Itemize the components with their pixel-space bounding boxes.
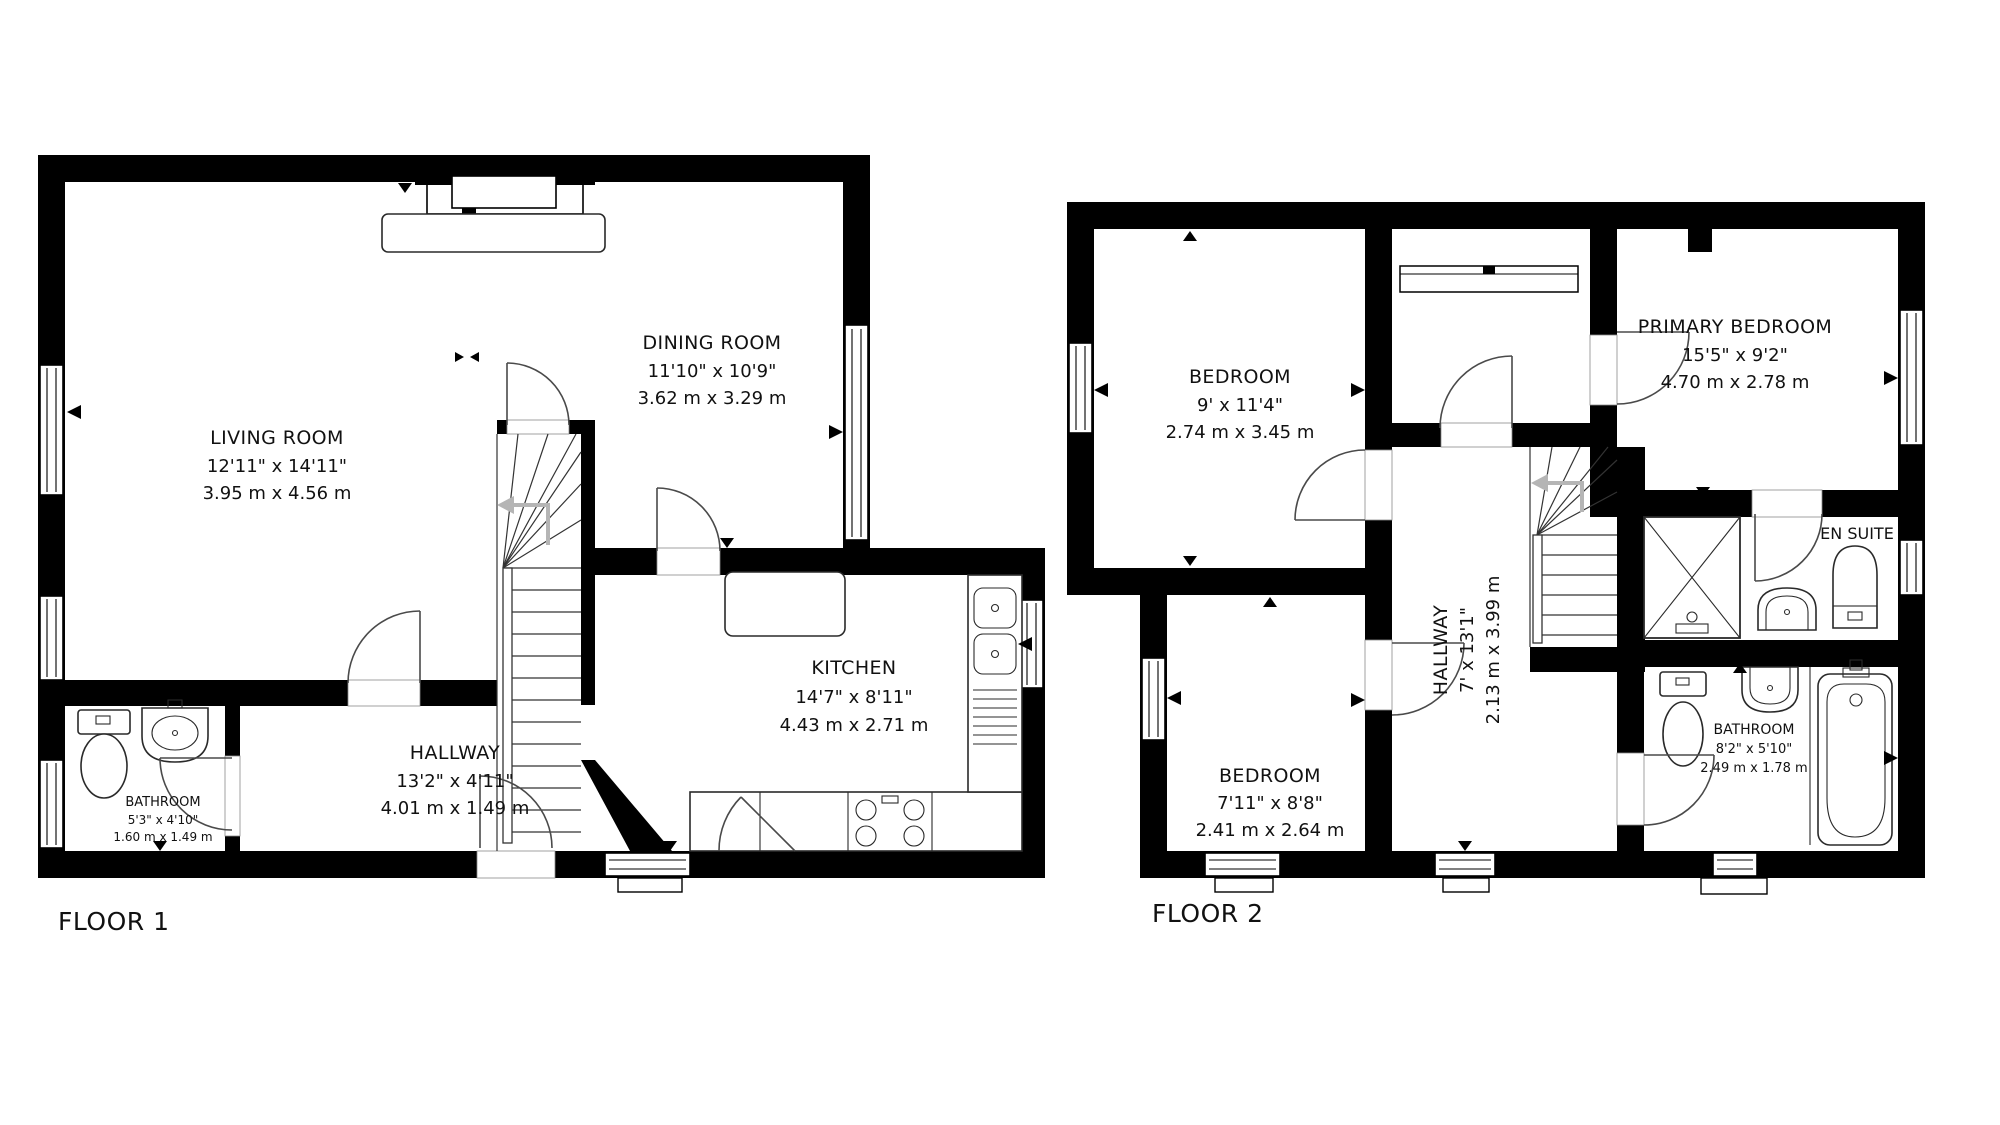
floorplan-svg: LIVING ROOM 12'11" x 14'11" 3.95 m x 4.5… [0, 0, 2000, 1125]
bedroom-top-imperial: 9' x 11'4" [1197, 395, 1283, 416]
kitchen-counter [725, 572, 845, 636]
hallway1-metric: 4.01 m x 1.49 m [381, 798, 530, 819]
bathtub-icon [1818, 660, 1892, 845]
window [1205, 853, 1280, 876]
hallway1-label: HALLWAY [410, 742, 500, 764]
door [1440, 356, 1512, 428]
living-room-label: LIVING ROOM [210, 427, 344, 449]
window [605, 853, 690, 876]
bathroom1-label: BATHROOM [125, 795, 200, 810]
kitchen-label: KITCHEN [811, 657, 896, 679]
toilet-icon [1660, 672, 1706, 766]
sink-icon [1758, 588, 1816, 630]
window [1713, 853, 1757, 876]
bathroom1-metric: 1.60 m x 1.49 m [113, 830, 212, 844]
window [1142, 658, 1165, 740]
floor2-plan: BEDROOM 9' x 11'4" 2.74 m x 3.45 m BEDRO… [1067, 202, 1925, 928]
floor1-title: FLOOR 1 [58, 907, 170, 936]
stairs-up-arrow-icon [497, 496, 548, 545]
toilet-icon [78, 710, 130, 798]
bathroom2-label: BATHROOM [1713, 722, 1794, 738]
floor1-walls [38, 155, 1045, 878]
kitchen-sink-icon [968, 575, 1022, 792]
door [1392, 643, 1464, 715]
window [1900, 310, 1923, 445]
kitchen-imperial: 14'7" x 8'11" [795, 687, 912, 708]
primary-bedroom-label: PRIMARY BEDROOM [1638, 316, 1832, 338]
window [1069, 343, 1092, 433]
step [1215, 878, 1273, 892]
bathroom2-metric: 2.49 m x 1.78 m [1700, 761, 1807, 776]
door [348, 611, 420, 683]
door [1755, 514, 1822, 581]
bedroom-bottom-label: BEDROOM [1219, 765, 1321, 787]
bedroom-bottom-imperial: 7'11" x 8'8" [1217, 793, 1323, 814]
door [1295, 450, 1365, 520]
step [1443, 878, 1489, 892]
window [40, 365, 63, 495]
dining-room-label: DINING ROOM [643, 332, 782, 354]
floorplan-canvas: LIVING ROOM 12'11" x 14'11" 3.95 m x 4.5… [0, 0, 2000, 1125]
hallway1-imperial: 13'2" x 4'11" [396, 771, 513, 792]
window [40, 760, 63, 848]
bathroom1-imperial: 5'3" x 4'10" [128, 813, 199, 827]
floor2-walls [1067, 202, 1925, 878]
kitchen-base-units [690, 792, 1022, 851]
floor2-title: FLOOR 2 [1152, 899, 1264, 928]
sink-icon [142, 700, 208, 762]
ensuite-label: EN SUITE [1820, 524, 1894, 543]
stairs-up-arrow-icon [1531, 474, 1582, 512]
window [40, 596, 63, 680]
kitchen-metric: 4.43 m x 2.71 m [780, 715, 929, 736]
bedroom-bottom-metric: 2.41 m x 2.64 m [1196, 820, 1345, 841]
entry-step [618, 878, 682, 892]
bedroom-top-label: BEDROOM [1189, 366, 1291, 388]
toilet-icon [1833, 546, 1877, 628]
dining-room-imperial: 11'10" x 10'9" [648, 361, 777, 382]
door [1617, 332, 1689, 404]
dining-room-metric: 3.62 m x 3.29 m [638, 388, 787, 409]
hallway2-metric: 2.13 m x 3.99 m [1483, 576, 1504, 725]
window [1435, 853, 1495, 876]
closet-icon [1400, 266, 1578, 292]
living-room-metric: 3.95 m x 4.56 m [203, 483, 352, 504]
floor1-plan: LIVING ROOM 12'11" x 14'11" 3.95 m x 4.5… [38, 155, 1045, 936]
step [1701, 878, 1767, 894]
primary-bedroom-metric: 4.70 m x 2.78 m [1661, 372, 1810, 393]
window [1900, 540, 1923, 595]
hallway2-label: HALLWAY [1430, 605, 1452, 695]
bathroom2-imperial: 8'2" x 5'10" [1716, 742, 1792, 757]
shower-icon [1644, 517, 1740, 638]
primary-bedroom-imperial: 15'5" x 9'2" [1682, 345, 1788, 366]
door [657, 488, 720, 551]
living-room-imperial: 12'11" x 14'11" [207, 456, 347, 477]
door [507, 363, 569, 425]
kitchen-fixtures [690, 572, 1022, 851]
window [845, 325, 868, 540]
sink-icon [1742, 667, 1798, 712]
bedroom-top-metric: 2.74 m x 3.45 m [1166, 422, 1315, 443]
fireplace-icon [382, 155, 605, 252]
hallway2-imperial: 7' x 13'1" [1457, 607, 1478, 693]
bathroom1-fixtures [78, 700, 208, 798]
